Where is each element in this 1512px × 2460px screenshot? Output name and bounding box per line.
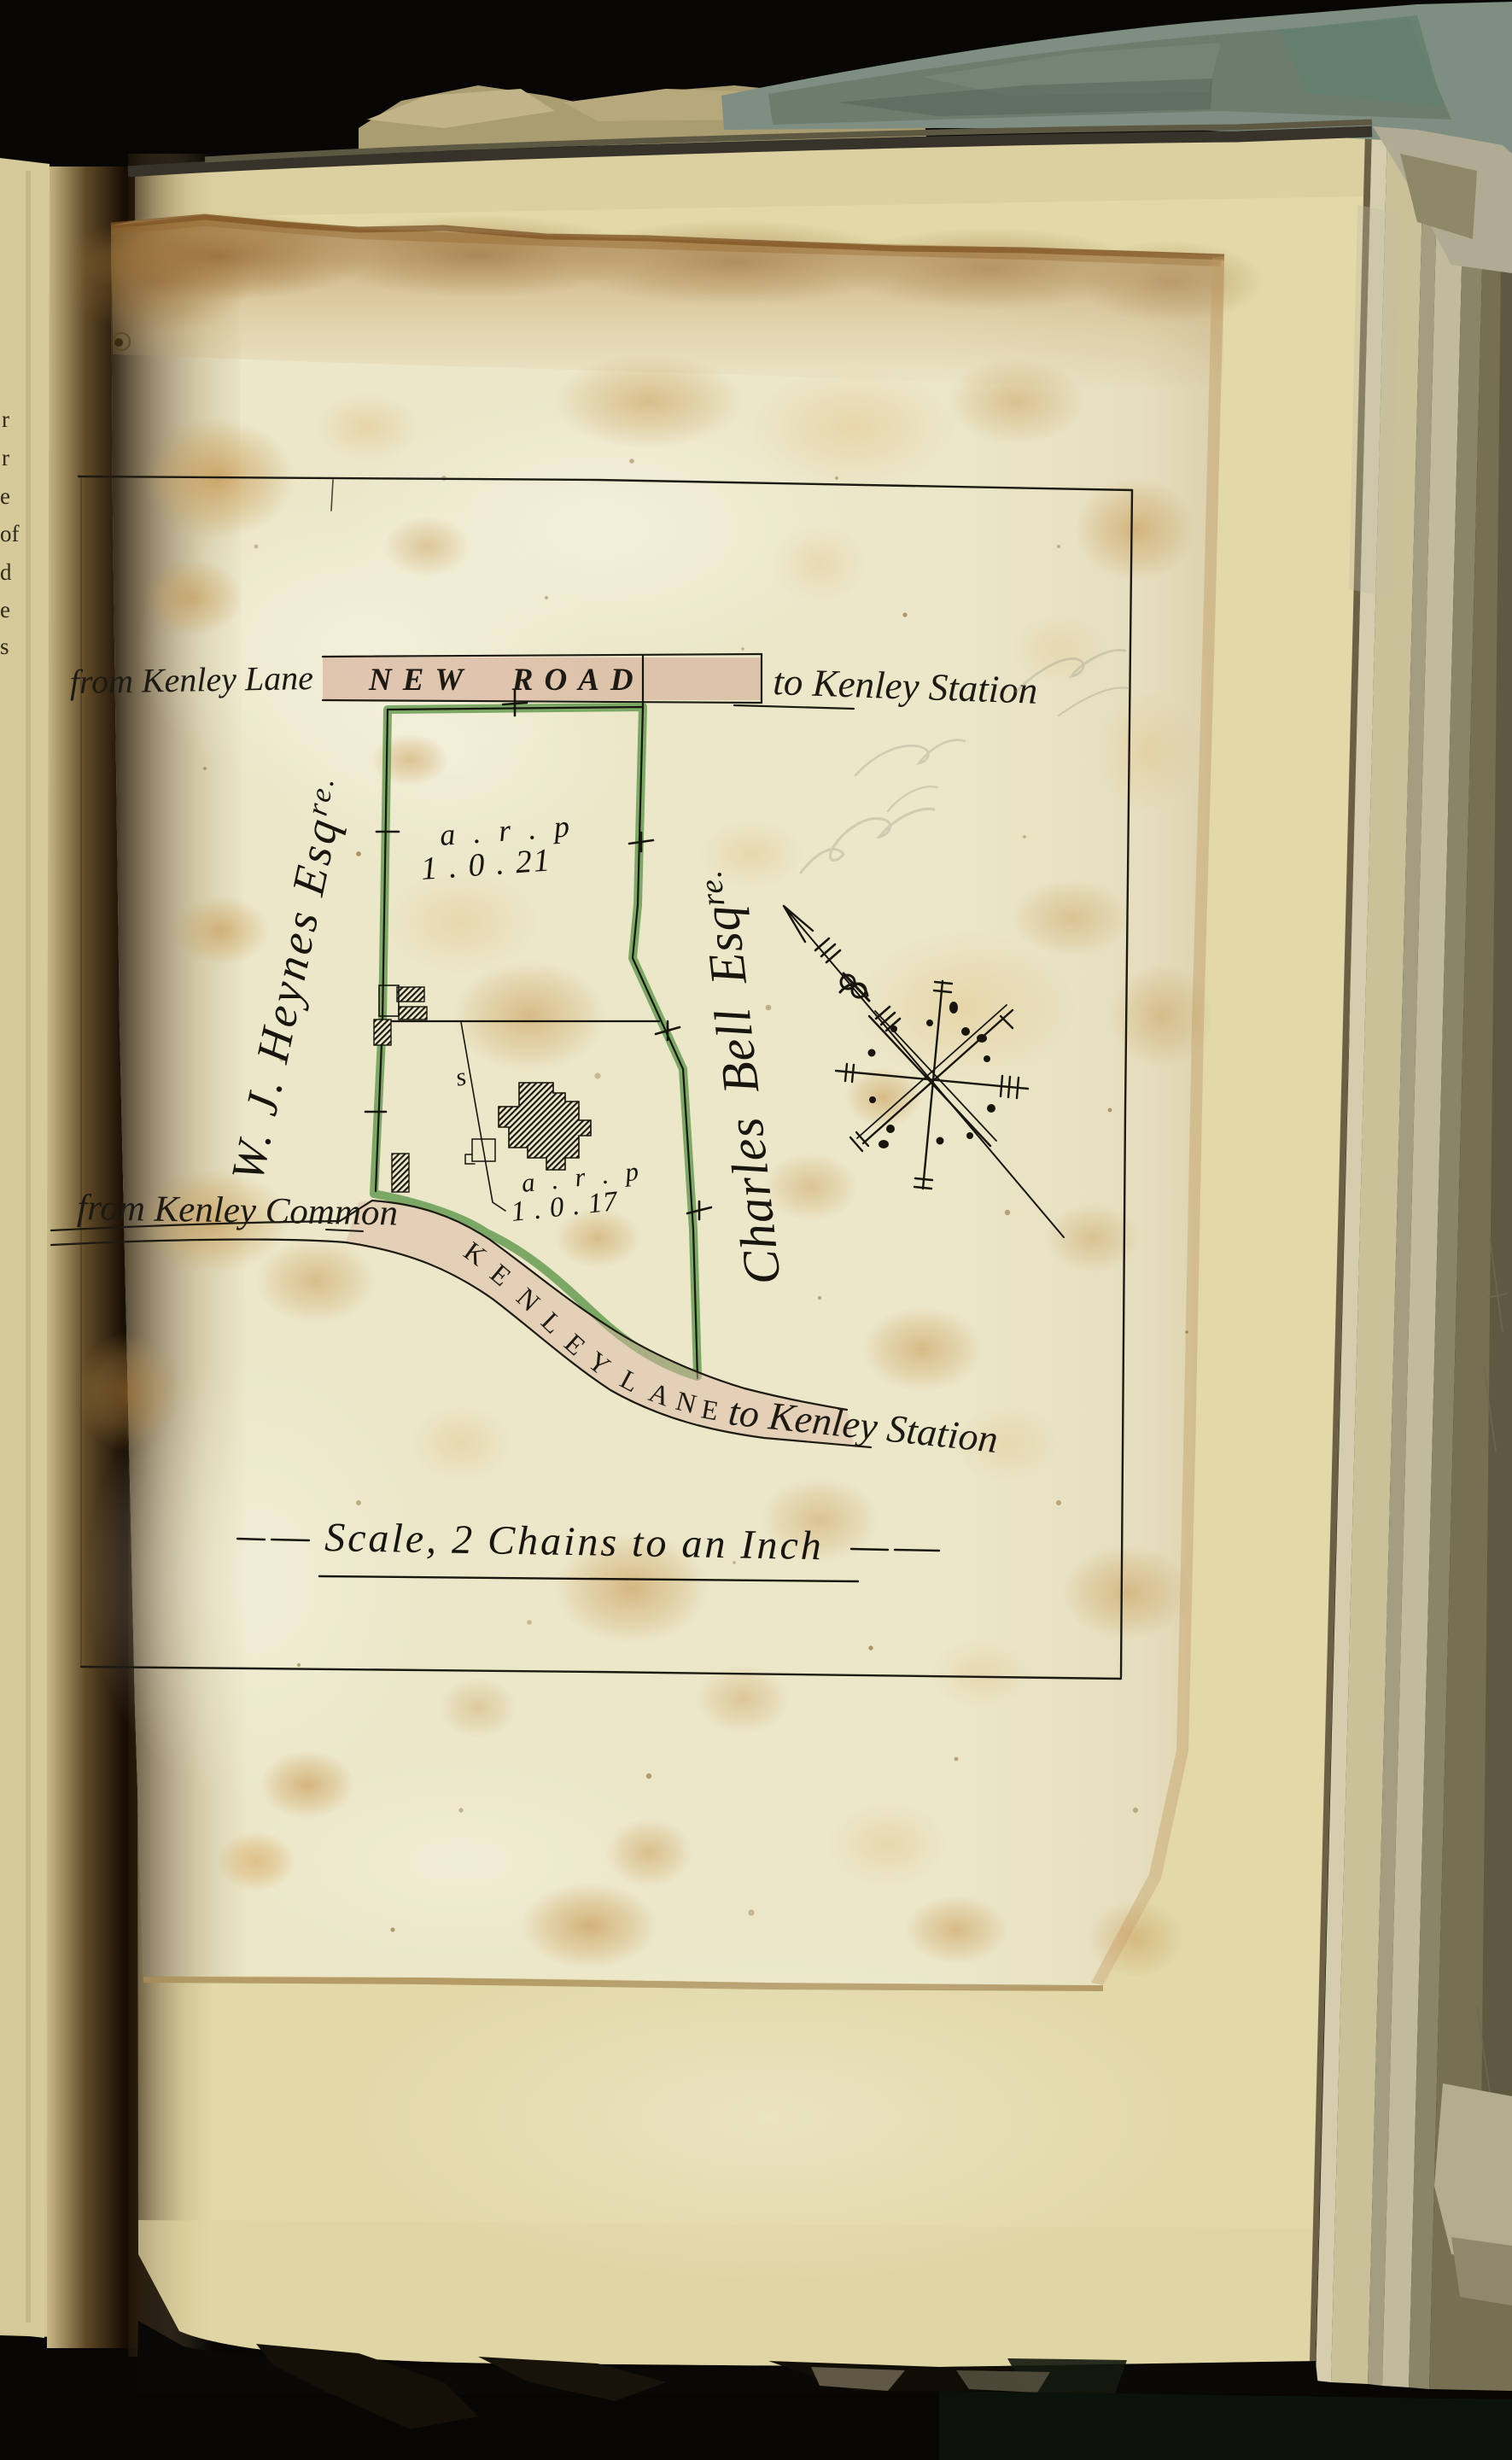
- svg-text:r: r: [2, 445, 9, 470]
- svg-text:r: r: [2, 406, 9, 432]
- svg-text:e: e: [0, 597, 10, 622]
- svg-text:d: d: [0, 559, 12, 585]
- svg-text:of: of: [0, 521, 20, 546]
- svg-text:e: e: [0, 483, 10, 509]
- svg-text:NEW ROAD: NEW ROAD: [368, 663, 645, 698]
- svg-text:s: s: [0, 634, 9, 659]
- svg-text:Scale, 2 Chains to an Inch: Scale, 2 Chains to an Inch: [324, 1515, 824, 1569]
- svg-text:from Kenley Common: from Kenley Common: [77, 1188, 399, 1234]
- svg-text:from Kenley Lane: from Kenley Lane: [69, 658, 313, 701]
